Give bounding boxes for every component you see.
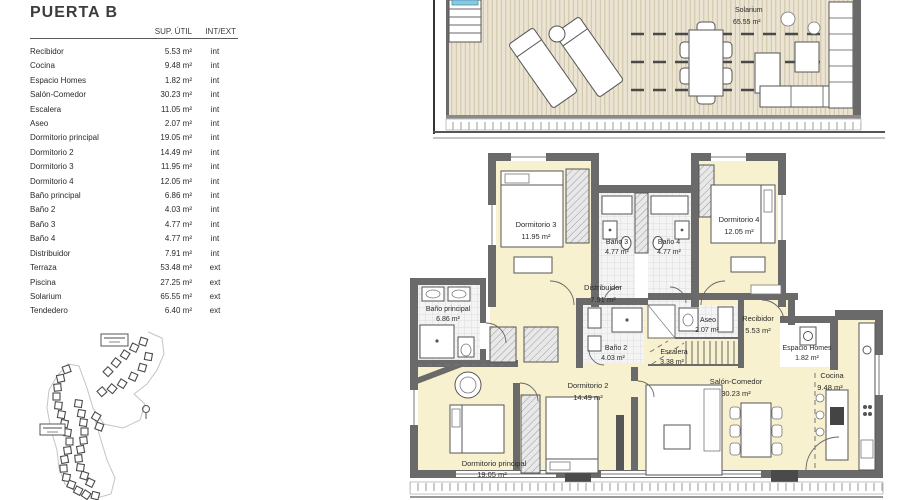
- row-area: 6.40 m²: [128, 304, 192, 318]
- pool-edge: [452, 0, 478, 5]
- room-area: 3.38 m²: [660, 359, 684, 366]
- table-row: Salón-Comedor30.23 m²int: [30, 88, 238, 102]
- site-plan-label-box: [40, 424, 65, 435]
- row-name: Recibidor: [30, 45, 128, 59]
- row-name: Cocina: [30, 59, 128, 73]
- area-table: Recibidor5.53 m²int Cocina9.48 m²int Esp…: [30, 45, 238, 319]
- row-name: Distribuidor: [30, 247, 128, 261]
- row-type: int: [192, 247, 238, 261]
- room-area: 4.77 m²: [605, 249, 629, 256]
- room-label: Espacio Homes: [782, 345, 832, 352]
- row-type: int: [192, 103, 238, 117]
- room-area: 5.53 m²: [745, 326, 771, 335]
- table-row: Baño 44.77 m²int: [30, 232, 238, 246]
- room-label: Dormitorio 2: [568, 381, 609, 390]
- main-floor-plan: Dormitorio 3 11.95 m² Baño 3 4.77 m² Bañ…: [406, 145, 896, 500]
- row-type: int: [192, 131, 238, 145]
- room-area: 2.07 m²: [695, 327, 719, 334]
- floorplan-sheet: PUERTA B SUP. ÚTIL INT/EXT Recibidor5.53…: [0, 0, 900, 500]
- site-plan-label-box: [101, 334, 128, 346]
- room-label: Dormitorio principal: [462, 459, 527, 468]
- row-area: 19.05 m²: [128, 131, 192, 145]
- terrace-deck-strip: [410, 482, 883, 497]
- room-area: 6.86 m²: [436, 316, 460, 323]
- room-area: 1.82 m²: [795, 355, 819, 362]
- plant-icon: [781, 12, 795, 26]
- solarium-plan: Solarium 65.55 m²: [433, 0, 893, 140]
- table-row: Dormitorio 214.49 m²int: [30, 146, 238, 160]
- row-area: 65.55 m²: [128, 290, 192, 304]
- dining-table: [741, 403, 771, 457]
- row-name: Baño 3: [30, 218, 128, 232]
- row-type: int: [192, 117, 238, 131]
- table-row: Aseo2.07 m²int: [30, 117, 238, 131]
- room-label: Baño 3: [606, 239, 628, 246]
- table-row: Distribuidor7.91 m²int: [30, 247, 238, 261]
- row-area: 12.05 m²: [128, 175, 192, 189]
- row-area: 7.91 m²: [128, 247, 192, 261]
- room-label: Recibidor: [742, 314, 774, 323]
- room-area: 30.23 m²: [721, 389, 751, 398]
- room-label: Baño principal: [426, 306, 471, 313]
- room-label: Dormitorio 4: [719, 215, 760, 224]
- row-name: Salón-Comedor: [30, 88, 128, 102]
- duct-shaft: [635, 193, 648, 253]
- table-row: Baño 34.77 m²int: [30, 218, 238, 232]
- row-area: 6.86 m²: [128, 189, 192, 203]
- row-name: Baño 2: [30, 203, 128, 217]
- room-label: Dormitorio 3: [516, 220, 557, 229]
- header-rule: [30, 38, 238, 39]
- row-type: ext: [192, 261, 238, 275]
- row-area: 30.23 m²: [128, 88, 192, 102]
- room-area: 12.05 m²: [724, 227, 754, 236]
- row-type: ext: [192, 276, 238, 290]
- solarium-bottom-edge: [433, 115, 885, 138]
- row-name: Dormitorio 3: [30, 160, 128, 174]
- solarium-right-wall: [853, 0, 861, 117]
- washer-icon: [800, 327, 816, 345]
- table-row: Escalera11.05 m²int: [30, 103, 238, 117]
- plant-icon: [808, 22, 820, 34]
- header-intext: INT/EXT: [192, 27, 238, 36]
- site-plan-buildings: [53, 337, 152, 500]
- site-plan: [35, 328, 240, 500]
- room-area: 14.49 m²: [573, 393, 603, 402]
- row-type: int: [192, 88, 238, 102]
- row-type: int: [192, 218, 238, 232]
- row-area: 4.03 m²: [128, 203, 192, 217]
- row-type: int: [192, 59, 238, 73]
- room-label: Solarium: [735, 7, 763, 14]
- row-name: Dormitorio 2: [30, 146, 128, 160]
- table-row: Tendedero6.40 m²ext: [30, 304, 238, 318]
- table-row: Piscina27.25 m²ext: [30, 276, 238, 290]
- row-area: 5.53 m²: [128, 45, 192, 59]
- room-label: Cocina: [820, 371, 844, 380]
- table-row: Espacio Homes1.82 m²int: [30, 74, 238, 88]
- row-type: int: [192, 203, 238, 217]
- table-row: Cocina9.48 m²int: [30, 59, 238, 73]
- pillar: [771, 470, 798, 483]
- table-row: Baño 24.03 m²int: [30, 203, 238, 217]
- row-type: int: [192, 74, 238, 88]
- row-name: Baño principal: [30, 189, 128, 203]
- room-label: Escalera: [660, 349, 687, 356]
- room-area: 4.77 m²: [657, 249, 681, 256]
- row-area: 9.48 m²: [128, 59, 192, 73]
- table-row: Baño principal6.86 m²int: [30, 189, 238, 203]
- row-name: Espacio Homes: [30, 74, 128, 88]
- table-row: Dormitorio principal19.05 m²int: [30, 131, 238, 145]
- row-name: Piscina: [30, 276, 128, 290]
- page-title: PUERTA B: [30, 4, 238, 22]
- entry-step: [751, 285, 781, 294]
- row-type: ext: [192, 290, 238, 304]
- table-row: Recibidor5.53 m²int: [30, 45, 238, 59]
- row-area: 27.25 m²: [128, 276, 192, 290]
- side-table: [549, 26, 565, 42]
- row-name: Dormitorio principal: [30, 131, 128, 145]
- row-name: Escalera: [30, 103, 128, 117]
- row-name: Tendedero: [30, 304, 128, 318]
- row-type: int: [192, 45, 238, 59]
- row-type: int: [192, 160, 238, 174]
- solarium-stair: [449, 0, 481, 42]
- row-name: Terraza: [30, 261, 128, 275]
- row-area: 4.77 m²: [128, 218, 192, 232]
- room-area: 4.03 m²: [601, 355, 625, 362]
- row-area: 14.49 m²: [128, 146, 192, 160]
- row-area: 11.95 m²: [128, 160, 192, 174]
- room-label: Baño 4: [658, 239, 680, 246]
- room-label: Distribuidor: [584, 283, 622, 292]
- room-area: 19.05 m²: [477, 470, 507, 479]
- row-area: 53.48 m²: [128, 261, 192, 275]
- row-area: 4.77 m²: [128, 232, 192, 246]
- row-type: ext: [192, 304, 238, 318]
- table-row: Terraza53.48 m²ext: [30, 261, 238, 275]
- row-area: 11.05 m²: [128, 103, 192, 117]
- room-label: Aseo: [700, 317, 716, 324]
- armchair: [455, 372, 481, 398]
- row-type: int: [192, 189, 238, 203]
- tv-unit: [616, 415, 624, 470]
- room-label: Salón-Comedor: [710, 377, 763, 386]
- row-area: 2.07 m²: [128, 117, 192, 131]
- room-area: 65.55 m²: [733, 19, 761, 26]
- row-type: int: [192, 175, 238, 189]
- row-area: 1.82 m²: [128, 74, 192, 88]
- row-type: int: [192, 146, 238, 160]
- header-area: SUP. ÚTIL: [128, 27, 192, 36]
- row-name: Dormitorio 4: [30, 175, 128, 189]
- room-label: Baño 2: [605, 345, 627, 352]
- table-row: Dormitorio 412.05 m²int: [30, 175, 238, 189]
- table-row: Dormitorio 311.95 m²int: [30, 160, 238, 174]
- row-type: int: [192, 232, 238, 246]
- room-area: 7.91 m²: [590, 295, 616, 304]
- area-table-panel: PUERTA B SUP. ÚTIL INT/EXT Recibidor5.53…: [30, 4, 238, 319]
- row-name: Solarium: [30, 290, 128, 304]
- row-name: Aseo: [30, 117, 128, 131]
- table-row: Solarium65.55 m²ext: [30, 290, 238, 304]
- row-name: Baño 4: [30, 232, 128, 246]
- table-header: SUP. ÚTIL INT/EXT: [30, 27, 238, 36]
- room-area: 11.95 m²: [521, 232, 551, 241]
- room-area: 9.48 m²: [817, 383, 843, 392]
